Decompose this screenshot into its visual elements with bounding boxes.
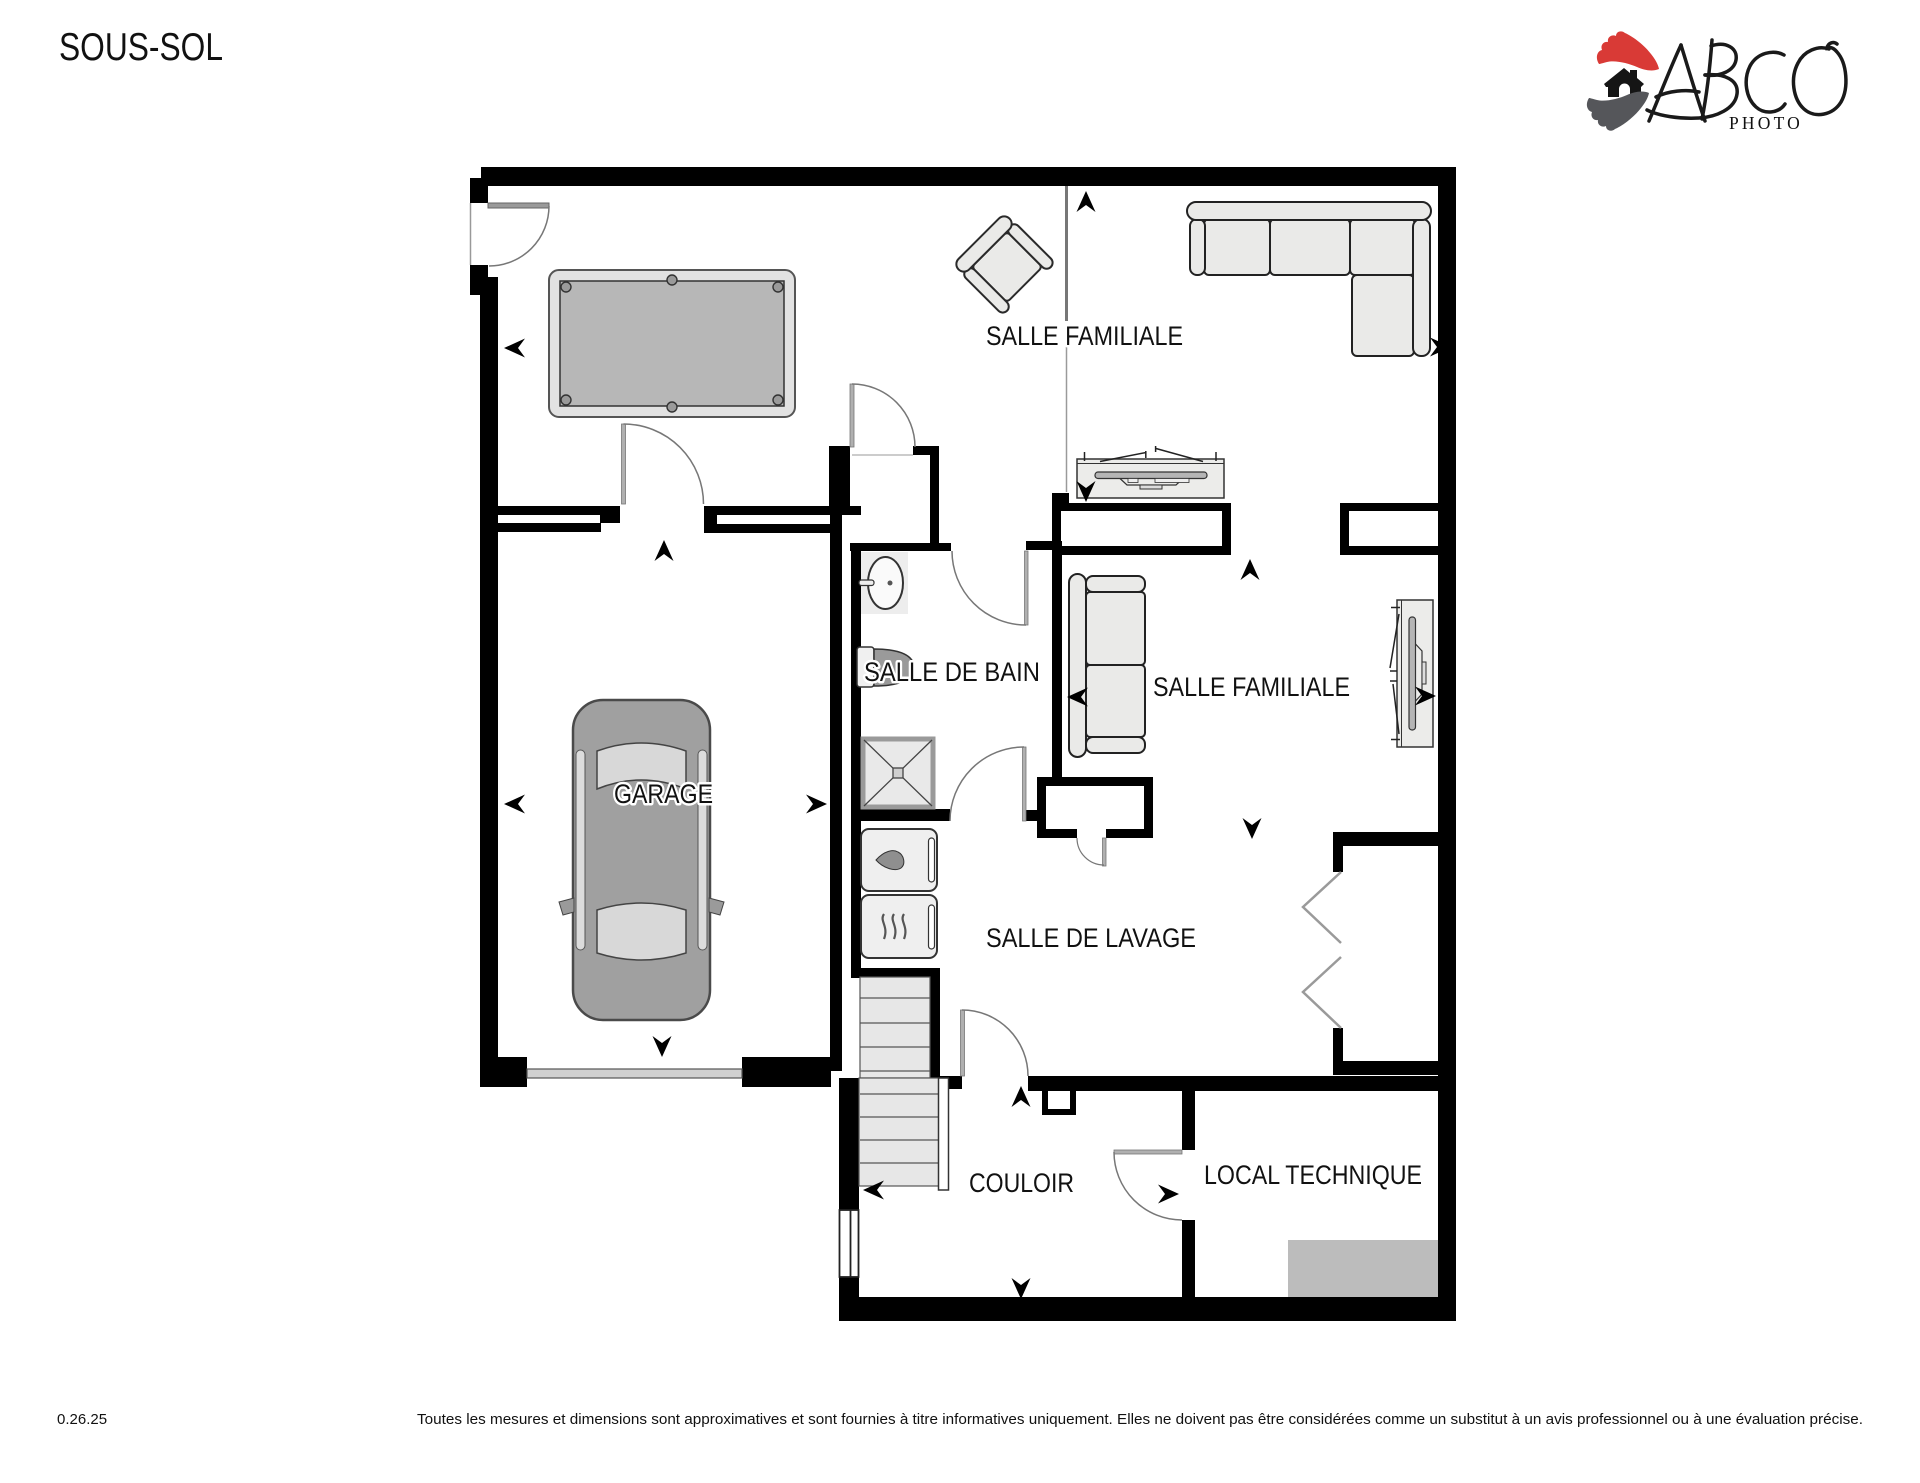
svg-text:SALLE FAMILIALE: SALLE FAMILIALE xyxy=(986,321,1183,351)
svg-text:SALLE FAMILIALE: SALLE FAMILIALE xyxy=(1153,672,1350,702)
svg-text:SALLE DE LAVAGE: SALLE DE LAVAGE xyxy=(986,923,1196,953)
svg-text:GARAGE: GARAGE xyxy=(614,779,713,809)
svg-text:SOUS-SOL: SOUS-SOL xyxy=(59,26,223,69)
svg-text:0.26.25: 0.26.25 xyxy=(57,1411,107,1428)
svg-text:COULOIR: COULOIR xyxy=(969,1168,1074,1198)
svg-text:SALLE DE BAIN: SALLE DE BAIN xyxy=(864,657,1040,687)
svg-text:Toutes les mesures et dimensio: Toutes les mesures et dimensions sont ap… xyxy=(417,1411,1863,1428)
svg-text:PHOTO: PHOTO xyxy=(1729,113,1803,133)
svg-text:LOCAL TECHNIQUE: LOCAL TECHNIQUE xyxy=(1204,1160,1422,1190)
